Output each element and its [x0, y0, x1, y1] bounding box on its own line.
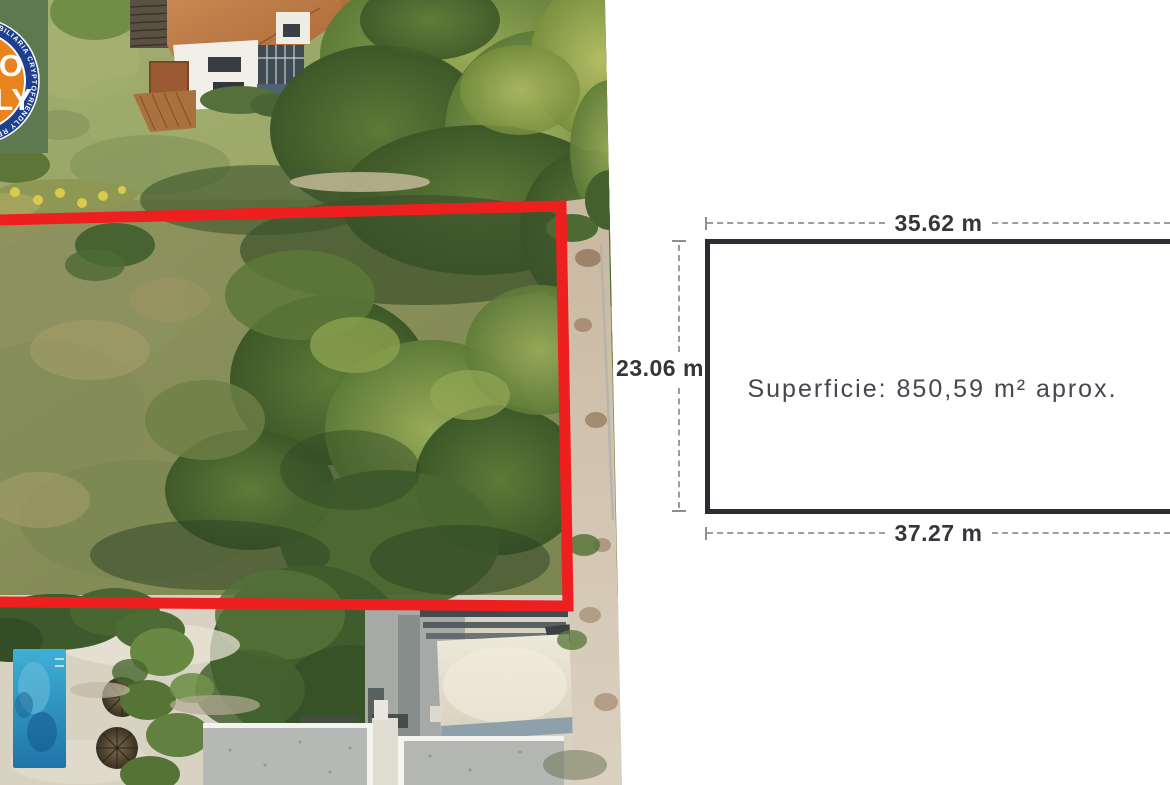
dashed-line — [707, 532, 885, 534]
dashed-line — [992, 532, 1170, 534]
gravel-roof-right — [398, 740, 564, 785]
house-window — [283, 24, 300, 37]
left-dimension-label: 23.06 m — [604, 357, 716, 380]
white-wall — [372, 718, 398, 785]
dimension-tick — [672, 510, 686, 512]
listing-image: INMOBILIARIA CRYPTOFRIENDLY REAL ESTATE … — [0, 0, 1170, 785]
badge-word-top: CRYPTO — [0, 48, 24, 83]
dashed-line — [678, 245, 680, 352]
watermark-badge: INMOBILIARIA CRYPTOFRIENDLY REAL ESTATE … — [0, 0, 48, 153]
bottom-dimension-label: 37.27 m — [885, 522, 993, 545]
plot-outline-rectangle: Superficie: 850,59 m² aprox. — [705, 239, 1170, 514]
surface-area-label: Superficie: 850,59 m² aprox. — [710, 375, 1155, 404]
dashed-line — [992, 222, 1170, 224]
roof-trim — [367, 723, 373, 785]
bottom-dimension-line: 37.27 m — [705, 523, 1170, 543]
roof-trim — [398, 736, 404, 785]
sail-highlight — [443, 647, 567, 723]
dashed-line — [678, 388, 680, 508]
roof-trim — [203, 723, 372, 728]
house-window — [208, 57, 241, 72]
roof-trim — [398, 736, 564, 741]
top-dimension-label: 35.62 m — [885, 212, 993, 235]
dimension-tick — [672, 240, 686, 242]
rooftop-box — [430, 706, 442, 722]
aerial-photo-canvas: INMOBILIARIA CRYPTOFRIENDLY REAL ESTATE … — [0, 0, 625, 785]
aerial-photo: INMOBILIARIA CRYPTOFRIENDLY REAL ESTATE … — [0, 0, 625, 785]
gravel-roof-left — [203, 727, 372, 785]
top-dimension-line: 35.62 m — [705, 213, 1170, 233]
badge-word-bottom: FRIENDLY — [0, 82, 33, 117]
dashed-line — [707, 222, 885, 224]
rooftop-box — [374, 700, 388, 720]
